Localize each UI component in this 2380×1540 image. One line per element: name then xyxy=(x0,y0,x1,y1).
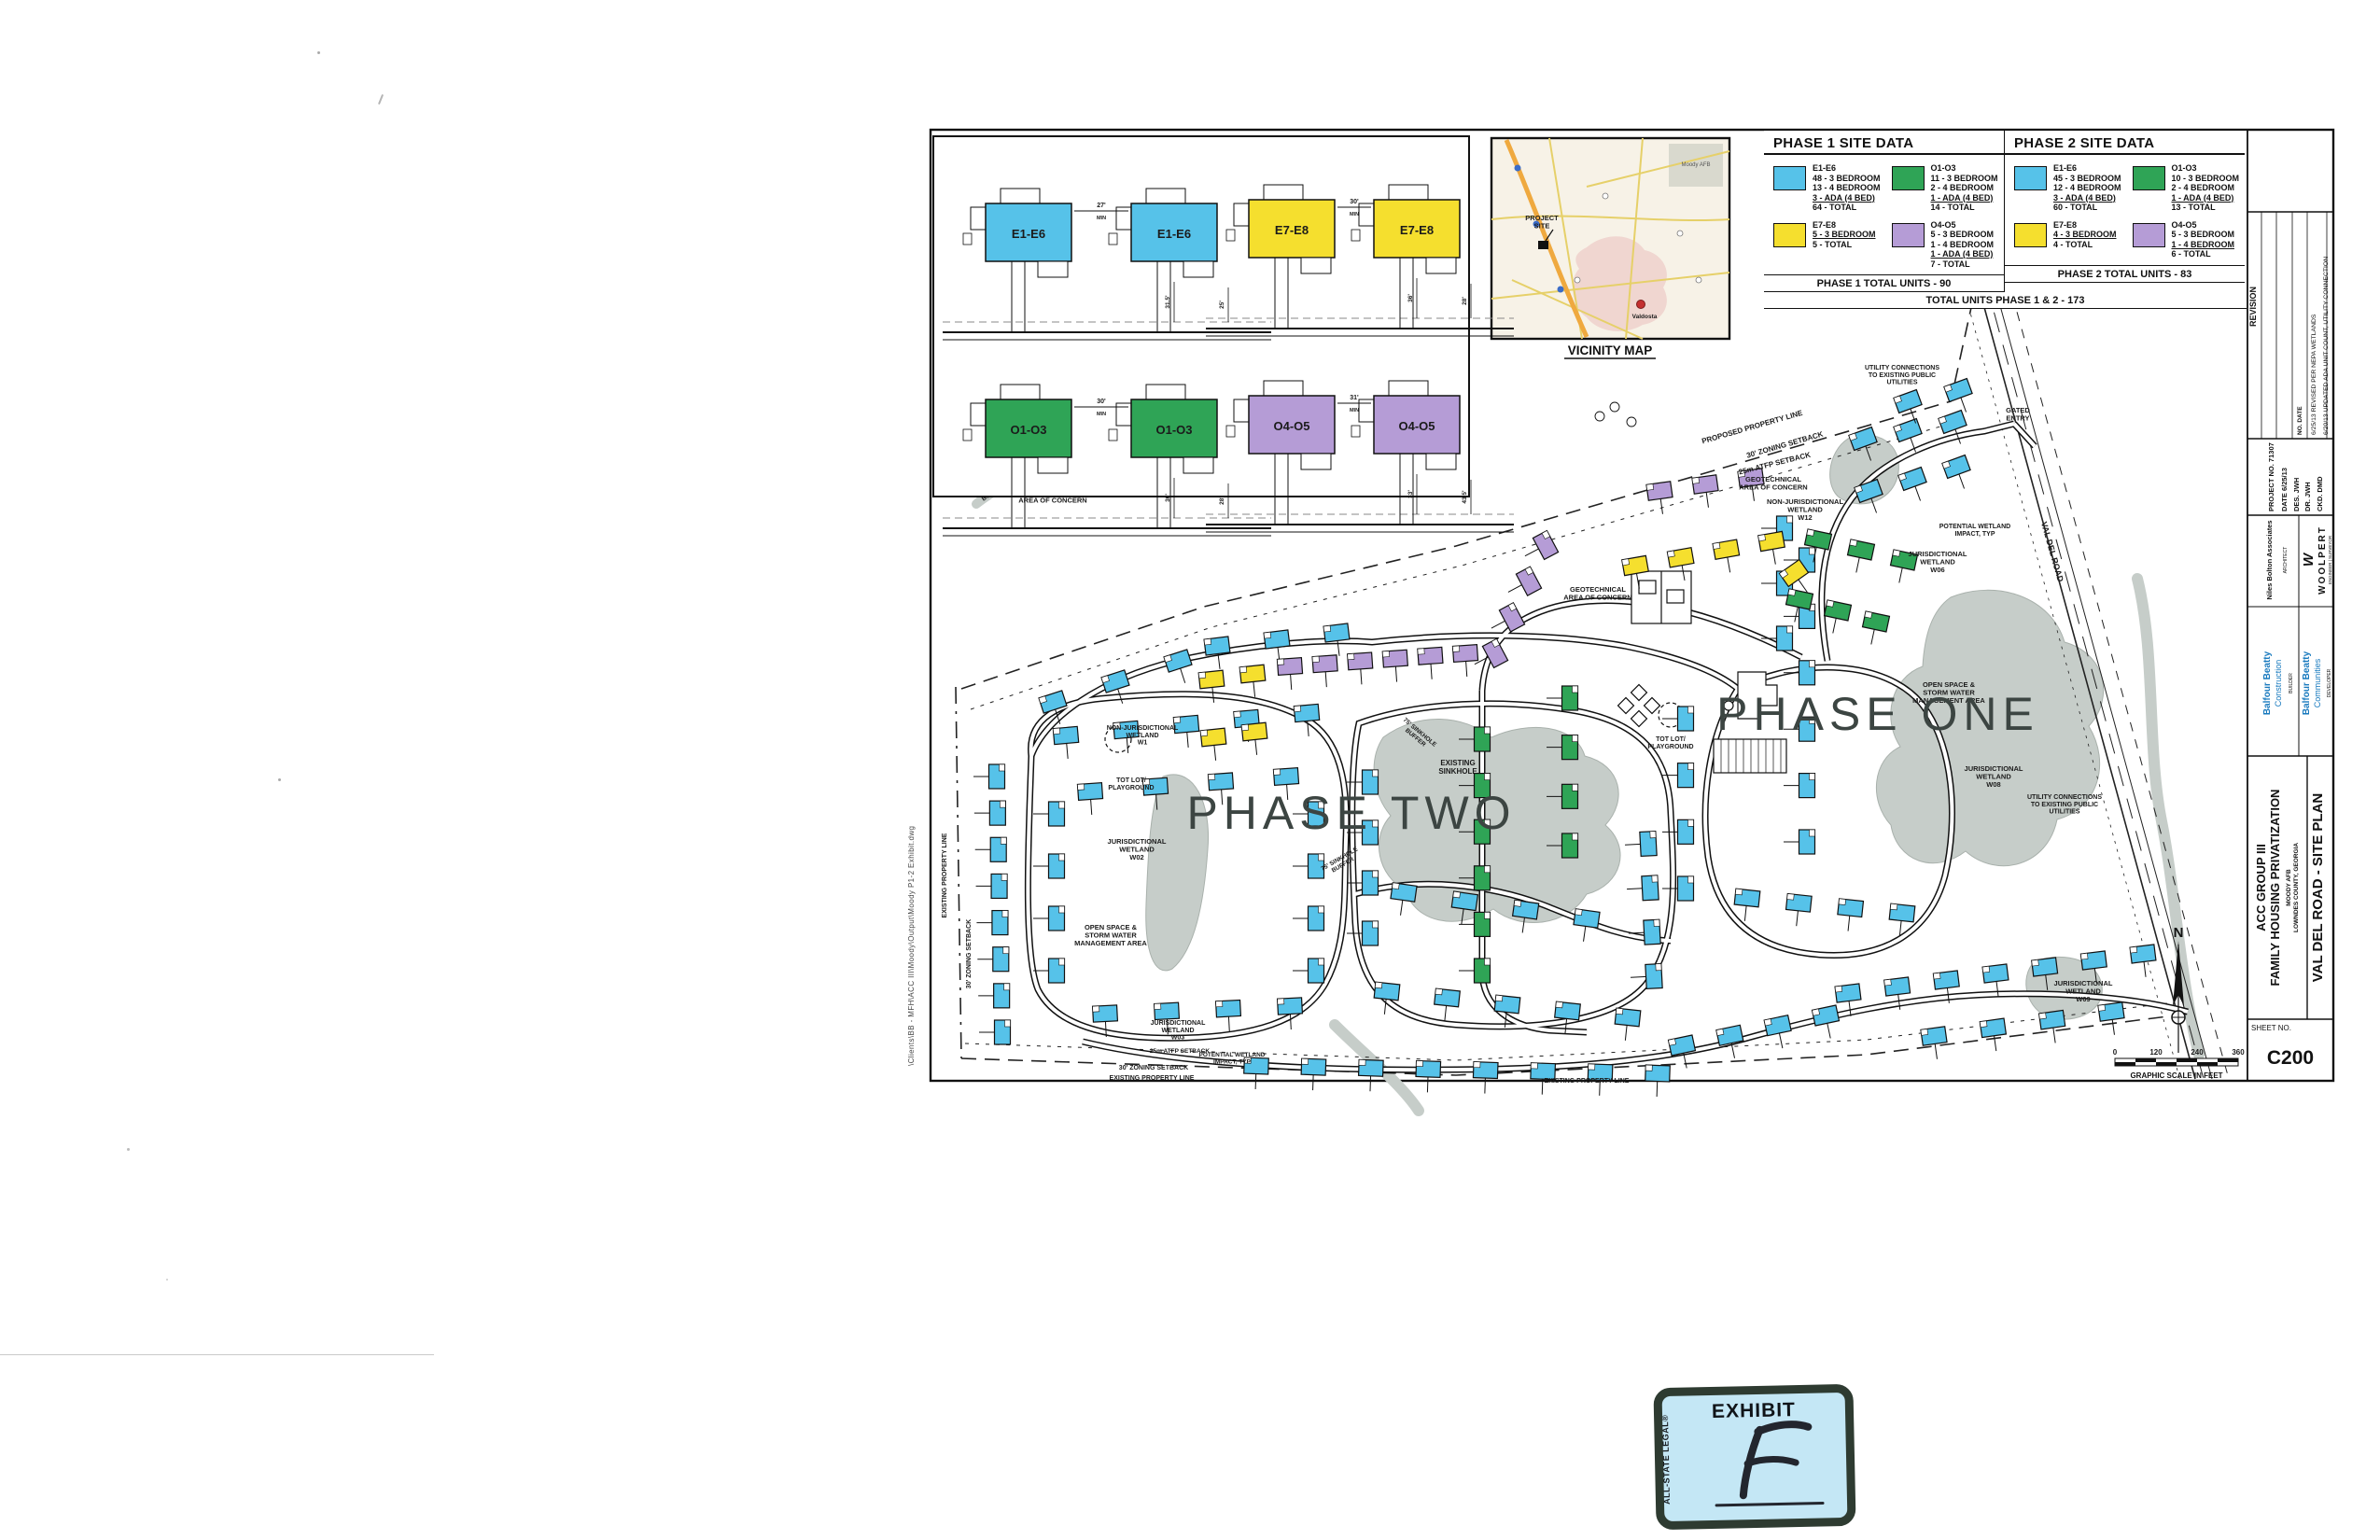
legend-swatch xyxy=(2133,223,2165,247)
building-b xyxy=(1033,854,1065,878)
base-label: Moody AFB xyxy=(1681,162,1710,168)
building-b xyxy=(974,801,1006,825)
dim-text: 31.5' xyxy=(1165,295,1171,309)
dim-text: MIN xyxy=(1097,216,1106,221)
picnic-shelter xyxy=(1645,698,1660,714)
scale-tick: 120 xyxy=(2149,1048,2163,1057)
plan-label: EXISTING PROPERTY LINE xyxy=(1545,1078,1630,1085)
woolpert-name: WOOLPERT xyxy=(2317,525,2328,595)
building-b xyxy=(1898,468,1932,505)
unit-label: O1-O3 xyxy=(1010,423,1046,437)
combined-total: TOTAL UNITS PHASE 1 & 2 - 173 xyxy=(1764,292,2247,309)
building-y xyxy=(1200,728,1227,762)
unit-wing xyxy=(971,403,987,426)
building-b xyxy=(1033,906,1065,931)
plan-label: 75' SINKHOLEBUFFER xyxy=(1320,846,1363,878)
site-data-tables: PHASE 1 SITE DATA E1-E648 - 3 BEDROOM13 … xyxy=(1764,131,2247,309)
unit-label: O4-O5 xyxy=(1273,419,1309,433)
building-y xyxy=(1241,722,1268,756)
building-b xyxy=(2039,1010,2067,1044)
building-b xyxy=(1784,830,1815,854)
unit-porch xyxy=(1109,233,1117,245)
unit-wing xyxy=(971,207,987,230)
building-b xyxy=(1813,1005,1842,1041)
picnic-shelter xyxy=(1631,711,1647,727)
unit-porch xyxy=(963,429,972,441)
route-marker xyxy=(1603,193,1608,199)
plan-label: GATEDENTRY xyxy=(2006,406,2030,422)
building-b xyxy=(1761,626,1793,651)
plan-label: POTENTIAL WETLANDIMPACT, TYP xyxy=(1939,524,2010,538)
legend-entry-O4-O5: O4-O55 - 3 BEDROOM1 - 4 BEDROOM6 - TOTAL xyxy=(2125,217,2244,263)
revision-label: REVISION xyxy=(2248,287,2258,327)
builder-name: Balfour Beatty xyxy=(2262,651,2273,715)
building-b xyxy=(1980,1018,2008,1053)
phase1-entries: E1-E648 - 3 BEDROOM13 - 4 BEDROOM3 - ADA… xyxy=(1764,155,2004,274)
dim-text: 28' xyxy=(1462,297,1468,305)
unit-label: O4-O5 xyxy=(1398,419,1435,433)
picnic-shelter xyxy=(1618,698,1634,714)
legend-entry-text: E7-E85 - 3 BEDROOM5 - TOTAL xyxy=(1813,220,1876,270)
building-b xyxy=(1716,1025,1746,1060)
legend-entry-text: E1-E645 - 3 BEDROOM12 - 4 BEDROOM3 - ADA… xyxy=(2053,163,2121,213)
legend-entry-text: O1-O311 - 3 BEDROOM2 - 4 BEDROOM1 - ADA … xyxy=(1931,163,1998,213)
unit-garage xyxy=(1038,457,1068,473)
legend-swatch xyxy=(2014,223,2047,247)
legend-entry-text: O4-O55 - 3 BEDROOM1 - 4 BEDROOM1 - ADA (… xyxy=(1931,220,1995,270)
building-b xyxy=(2130,945,2158,978)
building-b xyxy=(1764,1015,1794,1051)
unit-porch xyxy=(1351,426,1360,437)
building-b xyxy=(1662,819,1694,844)
tennis-box xyxy=(1639,581,1656,594)
building-g xyxy=(1859,611,1889,647)
route-marker xyxy=(1696,277,1701,283)
legend-entry-E7-E8: E7-E84 - 3 BEDROOM4 - TOTAL xyxy=(2007,217,2125,263)
scale-tick: 360 xyxy=(2232,1048,2245,1057)
plan-label: EXISTING PROPERTY LINE xyxy=(942,833,948,917)
graphic-scale-caption: GRAPHIC SCALE IN FEET xyxy=(2130,1071,2222,1080)
building-b xyxy=(1293,854,1324,878)
dim-text: 43.5' xyxy=(1462,490,1468,504)
legend-entry-E1-E6: E1-E645 - 3 BEDROOM12 - 4 BEDROOM3 - ADA… xyxy=(2007,160,2125,217)
phase1-title: PHASE 1 SITE DATA xyxy=(1764,131,2004,155)
building-b xyxy=(1921,1027,1949,1061)
building-b xyxy=(973,764,1005,789)
interstate-shield xyxy=(1558,287,1564,293)
unit-porch xyxy=(1226,230,1235,241)
plan-label: JURISDICTIONALWETLANDW06 xyxy=(1909,550,1967,574)
dim-text: 27' xyxy=(1097,203,1106,209)
building-b xyxy=(1662,876,1694,901)
boundary-line xyxy=(956,687,961,1058)
sheet-no: C200 xyxy=(2267,1047,2314,1069)
legend-swatch xyxy=(1773,223,1806,247)
project-date: DATE 6/25/13 xyxy=(2280,468,2289,511)
building-b xyxy=(1216,1000,1242,1032)
tree-symbol xyxy=(1610,402,1619,412)
unit-label: O1-O3 xyxy=(1155,423,1192,437)
building-p xyxy=(1519,531,1559,567)
building-p xyxy=(1452,645,1478,678)
project-title-2: FAMILY HOUSING PRIVATIZATION xyxy=(2268,790,2282,987)
legend-swatch xyxy=(1773,166,1806,190)
plan-label: OPEN SPACE &STORM WATERMANAGEMENT AREA xyxy=(1074,923,1147,947)
project-dr: DR. JWH xyxy=(2303,482,2312,511)
project-no: PROJECT NO. 71307 xyxy=(2267,442,2275,511)
unit-garage xyxy=(1038,261,1068,277)
building-b xyxy=(1784,774,1815,798)
tree-symbol xyxy=(1595,412,1604,421)
phase-two-label: PHASE TWO xyxy=(1186,787,1516,839)
dim-text: MIN xyxy=(1350,212,1359,217)
plan-label: GEOTECHNICALAREA OF CONCERN xyxy=(1563,585,1631,601)
building-b xyxy=(1347,921,1379,945)
phase1-total: PHASE 1 TOTAL UNITS - 90 xyxy=(1764,274,2004,292)
architect-name: Niles Bolton Associates xyxy=(2265,520,2274,599)
phase2-total: PHASE 2 TOTAL UNITS - 83 xyxy=(2005,265,2245,283)
building-b xyxy=(975,837,1007,861)
vicinity-caption: VICINITY MAP xyxy=(1568,343,1653,357)
building-p xyxy=(1503,567,1542,603)
unit-garage xyxy=(1426,258,1456,273)
building-b xyxy=(1077,783,1103,816)
unit-porch xyxy=(1109,429,1117,441)
tennis-box xyxy=(1667,590,1684,603)
legend-entry-text: O4-O55 - 3 BEDROOM1 - 4 BEDROOM6 - TOTAL xyxy=(2172,220,2235,259)
unit-garage xyxy=(1301,258,1331,273)
legend-entry-text: E1-E648 - 3 BEDROOM13 - 4 BEDROOM3 - ADA… xyxy=(1813,163,1881,213)
architect-role: ARCHITECT xyxy=(2283,547,2289,574)
building-y xyxy=(1713,539,1742,575)
project-sub-2: LOWNDES COUNTY, GEORGIA xyxy=(2293,843,2300,932)
picnic-shelter xyxy=(1631,685,1647,701)
developer-role: DEVELOPER xyxy=(2327,668,2332,697)
dim-text: 30' xyxy=(1097,399,1106,405)
building-b xyxy=(976,911,1008,935)
scale-cell xyxy=(2177,1058,2197,1062)
plan-label: GEOTECHNICALAREA OF CONCERN xyxy=(1739,475,1807,491)
building-g xyxy=(1844,539,1874,575)
plan-label: EXISTING PROPERTY LINE xyxy=(1110,1075,1195,1082)
project-des: DES. JWH xyxy=(2292,478,2301,511)
city-marker xyxy=(1637,301,1645,309)
building-g xyxy=(1459,959,1491,983)
woolpert-role: ENGINEER | SURVEYOR xyxy=(2328,535,2332,584)
building-p xyxy=(1348,652,1374,685)
building-b xyxy=(1293,906,1324,931)
woolpert-mark: W xyxy=(2301,552,2317,567)
legend-entry-O1-O3: O1-O310 - 3 BEDROOM2 - 4 BEDROOM1 - ADA … xyxy=(2125,160,2244,217)
sheet-no-label: SHEET NO. xyxy=(2251,1024,2291,1032)
route-marker xyxy=(1677,231,1683,236)
dim-text: 36' xyxy=(1165,494,1171,502)
phase1-site-data: PHASE 1 SITE DATA E1-E648 - 3 BEDROOM13 … xyxy=(1764,131,2004,292)
building-p xyxy=(1382,650,1408,682)
building-b xyxy=(1628,919,1660,945)
exhibit-stamp: EXHIBIT ALL-STATE LEGAL® xyxy=(1653,1384,1855,1530)
scale-tick: 0 xyxy=(2113,1048,2118,1057)
scale-cell xyxy=(2197,1062,2218,1066)
building-p xyxy=(1312,655,1338,688)
unit-label: E1-E6 xyxy=(1157,227,1191,241)
building-b xyxy=(1293,959,1324,983)
unit-wing xyxy=(1001,189,1040,204)
building-b xyxy=(1033,802,1065,826)
builder-role: BUILDER xyxy=(2289,673,2294,693)
unit-label: E1-E6 xyxy=(1012,227,1045,241)
building-b xyxy=(1942,455,1976,493)
interstate-shield xyxy=(1515,165,1521,172)
dim-text: 30' xyxy=(1350,199,1359,205)
phase2-site-data: PHASE 2 SITE DATA E1-E645 - 3 BEDROOM12 … xyxy=(2004,131,2245,292)
building-b xyxy=(1278,998,1304,1030)
scale-cell xyxy=(2156,1062,2177,1066)
unit-garage xyxy=(1426,454,1456,469)
dim-text: 33' xyxy=(1407,490,1414,498)
building-y xyxy=(1239,665,1267,698)
unit-label: E7-E8 xyxy=(1400,223,1434,237)
dim-text: 25' xyxy=(1219,301,1225,309)
unit-garage xyxy=(1301,454,1331,469)
legend-swatch xyxy=(1892,223,1925,247)
legend-entry-E7-E8: E7-E85 - 3 BEDROOM5 - TOTAL xyxy=(1766,217,1884,273)
unit-wing xyxy=(1264,381,1303,397)
unit-wing xyxy=(1234,399,1250,422)
city-label: Valdosta xyxy=(1632,314,1658,320)
unit-porch xyxy=(963,233,972,245)
dim-text: 28' xyxy=(1219,497,1225,505)
building-b xyxy=(1630,964,1662,990)
scale-tick: 240 xyxy=(2191,1048,2204,1057)
legend-entry-O1-O3: O1-O311 - 3 BEDROOM2 - 4 BEDROOM1 - ADA … xyxy=(1884,160,2003,217)
file-path-note: \Clients\BB - MFH\ACC III\Moody\Output\M… xyxy=(907,826,916,1066)
building-b xyxy=(1301,1058,1326,1090)
dim-text: MIN xyxy=(1097,412,1106,417)
building-b xyxy=(1626,875,1659,902)
building-p xyxy=(1418,647,1444,679)
project-title-1: ACC GROUP III xyxy=(2254,844,2268,931)
tree-symbol xyxy=(1627,417,1636,427)
plan-label: 30' ZONING SETBACK xyxy=(966,919,973,988)
route-marker xyxy=(1575,277,1580,283)
unit-garage xyxy=(1183,261,1213,277)
developer-name: Balfour Beatty xyxy=(2302,651,2312,715)
unit-garage xyxy=(1183,457,1213,473)
building-b xyxy=(1836,899,1863,932)
revision-entry: 6/25/13 REVISED PER NEPA WETLANDS xyxy=(2311,314,2317,435)
wetland-band xyxy=(2137,579,2199,1055)
phase-one-label: PHASE ONE xyxy=(1716,688,2039,740)
building-b xyxy=(978,984,1010,1008)
scanned-page: { "palette":{"b":"#56c2e9","g":"#2fa456"… xyxy=(0,0,2380,1540)
phase2-title: PHASE 2 SITE DATA xyxy=(2005,131,2245,155)
scale-cell xyxy=(2218,1058,2238,1062)
titleblock-text: REVISION NO. DATE 6/25/13 REVISED PER NE… xyxy=(2248,257,2332,1069)
parking-lot xyxy=(1714,739,1786,773)
building-p xyxy=(1277,658,1303,691)
building-b xyxy=(1784,661,1815,685)
building-b xyxy=(1053,726,1080,760)
legend-swatch xyxy=(1892,166,1925,190)
building-b xyxy=(1294,704,1321,737)
scale-cell xyxy=(2135,1058,2156,1062)
unit-porch xyxy=(1351,230,1360,241)
plan-label: 30' ZONING SETBACK xyxy=(1119,1065,1188,1071)
exhibit-letter xyxy=(1662,1393,1848,1521)
legend-entry-E1-E6: E1-E648 - 3 BEDROOM13 - 4 BEDROOM3 - ADA… xyxy=(1766,160,1884,217)
revision-header: NO. DATE xyxy=(2297,406,2303,435)
building-b xyxy=(2098,1002,2126,1037)
plan-label: TOT LOT/PLAYGROUND xyxy=(1647,736,1693,750)
building-b xyxy=(1389,883,1417,917)
project-ckd: CKD. DMD xyxy=(2316,476,2324,511)
building-b xyxy=(1473,1062,1498,1094)
building-b xyxy=(1358,1059,1383,1091)
unit-porch xyxy=(1226,426,1235,437)
unit-wing xyxy=(1146,189,1185,204)
unit-wing xyxy=(1389,185,1428,201)
building-b xyxy=(1624,832,1657,858)
building-b xyxy=(976,874,1008,898)
plan-label: EXISTINGSINKHOLE xyxy=(1438,759,1477,776)
building-b xyxy=(1572,909,1600,944)
phase2-entries: E1-E645 - 3 BEDROOM12 - 4 BEDROOM3 - ADA… xyxy=(2005,155,2245,265)
revision-entry: 6/20/13 UPDATED ADA UNIT COUNT, UTILITY … xyxy=(2323,257,2330,435)
plan-label: UTILITY CONNECTIONSTO EXISTING PUBLICUTI… xyxy=(1865,365,1939,386)
unit-wing xyxy=(1389,381,1428,397)
unit-wing xyxy=(1001,385,1040,400)
legend-swatch xyxy=(2014,166,2047,190)
builder-name2: Construction xyxy=(2274,660,2283,707)
legend-entry-O4-O5: O4-O55 - 3 BEDROOM1 - 4 BEDROOM1 - ADA (… xyxy=(1884,217,2003,273)
developer-name2: Communities xyxy=(2313,658,2322,707)
building-y xyxy=(1758,531,1787,567)
building-p xyxy=(1692,475,1720,510)
unit-label: E7-E8 xyxy=(1275,223,1309,237)
building-b xyxy=(1173,715,1200,749)
building-b xyxy=(1645,1065,1670,1097)
building-b xyxy=(1785,894,1812,928)
svg-text:N: N xyxy=(2174,925,2184,941)
dim-text: 31' xyxy=(1350,395,1359,401)
sheet-title: VAL DEL ROAD - SITE PLAN xyxy=(2310,793,2326,983)
unit-wing xyxy=(1264,185,1303,201)
project-site-marker xyxy=(1538,241,1548,249)
legend-entry-text: O1-O310 - 3 BEDROOM2 - 4 BEDROOM1 - ADA … xyxy=(2172,163,2240,213)
road-surface xyxy=(2014,424,2035,446)
building-b xyxy=(979,1020,1011,1044)
dim-text: MIN xyxy=(1350,408,1359,413)
building-b xyxy=(977,947,1009,972)
plan-label: 30' ZONING SETBACK xyxy=(1745,429,1824,459)
dim-text: 36' xyxy=(1407,294,1414,302)
building-b xyxy=(1433,988,1460,1022)
project-sub-1: MOODY AFB xyxy=(2286,869,2292,906)
legend-swatch xyxy=(2133,166,2165,190)
scale-cell xyxy=(2115,1062,2135,1066)
unit-wing xyxy=(1146,385,1185,400)
building-b xyxy=(1662,707,1694,731)
building-b xyxy=(1415,1060,1440,1092)
building-b xyxy=(1613,1008,1640,1042)
unit-wing xyxy=(1234,203,1250,226)
legend-entry-text: E7-E84 - 3 BEDROOM4 - TOTAL xyxy=(2053,220,2117,259)
